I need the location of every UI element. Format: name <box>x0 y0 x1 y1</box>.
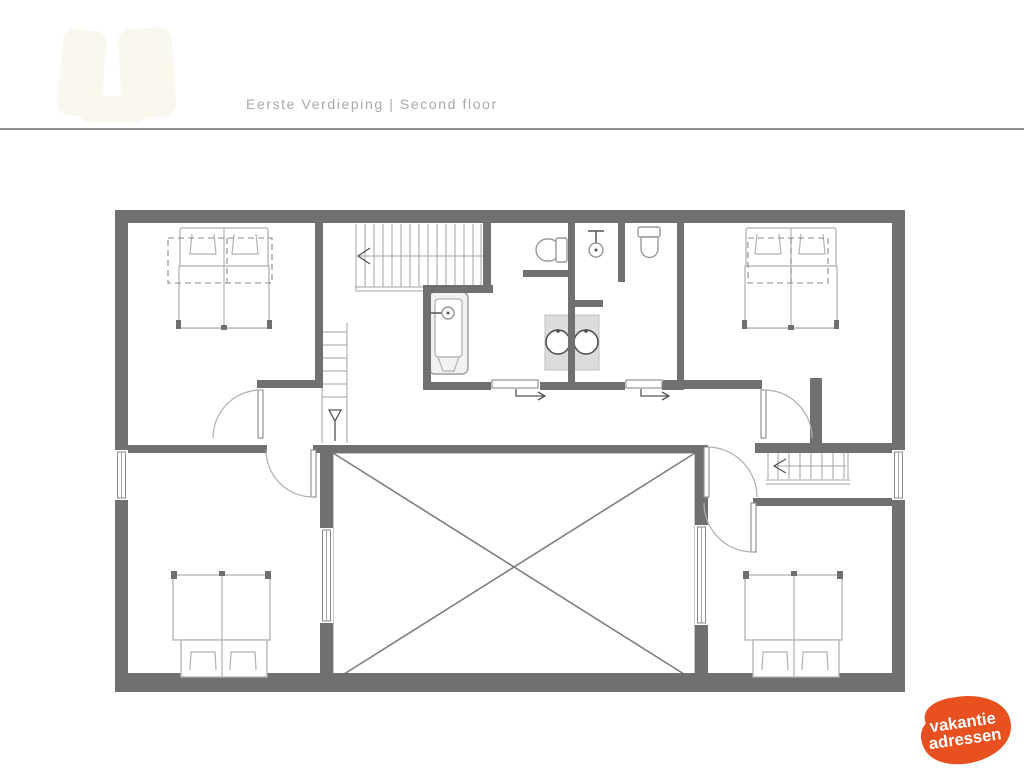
door-bedroom-top-left <box>213 390 263 438</box>
wall-outer-top <box>115 210 905 223</box>
window-outer-left <box>115 450 128 500</box>
toilet-right <box>638 227 660 258</box>
wall-interior <box>523 270 568 277</box>
bed-top-right <box>742 228 839 330</box>
door-bedroom-bottom-right <box>704 503 756 552</box>
wall-interior <box>618 223 625 282</box>
wall-interior <box>423 285 431 390</box>
wall-interior <box>755 443 892 453</box>
wall-outer-right <box>892 223 905 450</box>
wall-interior <box>423 285 493 293</box>
wall-outer-left <box>115 223 128 450</box>
doors <box>213 390 812 552</box>
wall-interior <box>568 223 575 390</box>
washbasin-left <box>546 330 570 354</box>
door-bedroom-bottom-left <box>266 450 316 497</box>
slide-arrow <box>516 389 545 400</box>
wall-interior <box>540 382 625 390</box>
staircase-right <box>766 452 850 484</box>
toilet-left <box>536 238 567 262</box>
wall-interior <box>483 223 491 291</box>
wall-interior <box>575 300 603 307</box>
staircase-main <box>355 224 491 291</box>
door-bedroom-top-right <box>761 390 812 438</box>
wall-interior <box>313 445 705 453</box>
shower-head <box>588 231 604 257</box>
stair-down-arrow <box>329 410 341 441</box>
washbasin-right <box>574 330 598 354</box>
window-outer-right <box>892 450 905 500</box>
bed-top-left <box>168 228 272 330</box>
vakantieadressen-logo: vakantie adressen <box>908 692 1016 768</box>
bed-bottom-right <box>743 571 843 677</box>
wall-interior <box>753 498 892 506</box>
wall-void-right <box>695 625 708 673</box>
wall-interior <box>423 382 491 390</box>
wall-outer-left <box>115 500 128 673</box>
header-divider-line <box>0 128 1024 130</box>
wall-interior <box>677 223 684 390</box>
window-void-right <box>695 525 708 625</box>
floor-plan <box>0 0 1024 768</box>
bed-bottom-left <box>171 571 271 677</box>
sliding-door-left-bathroom <box>492 380 545 400</box>
wall-interior <box>315 223 323 380</box>
wall-interior <box>662 382 683 390</box>
window-void-left <box>320 528 333 623</box>
wall-interior <box>257 380 323 388</box>
door-stair-corridor <box>704 447 757 497</box>
slide-arrow <box>641 389 669 400</box>
page-title: Eerste Verdieping | Second floor <box>246 96 498 112</box>
wall-void-left <box>320 445 333 528</box>
stair-treads <box>322 332 347 397</box>
void-cross <box>333 453 695 681</box>
void-opening <box>333 453 695 681</box>
wall-outer-right <box>892 500 905 673</box>
wall-interior <box>128 445 267 453</box>
staircase-small <box>322 323 347 443</box>
wall-void-left <box>320 623 333 679</box>
